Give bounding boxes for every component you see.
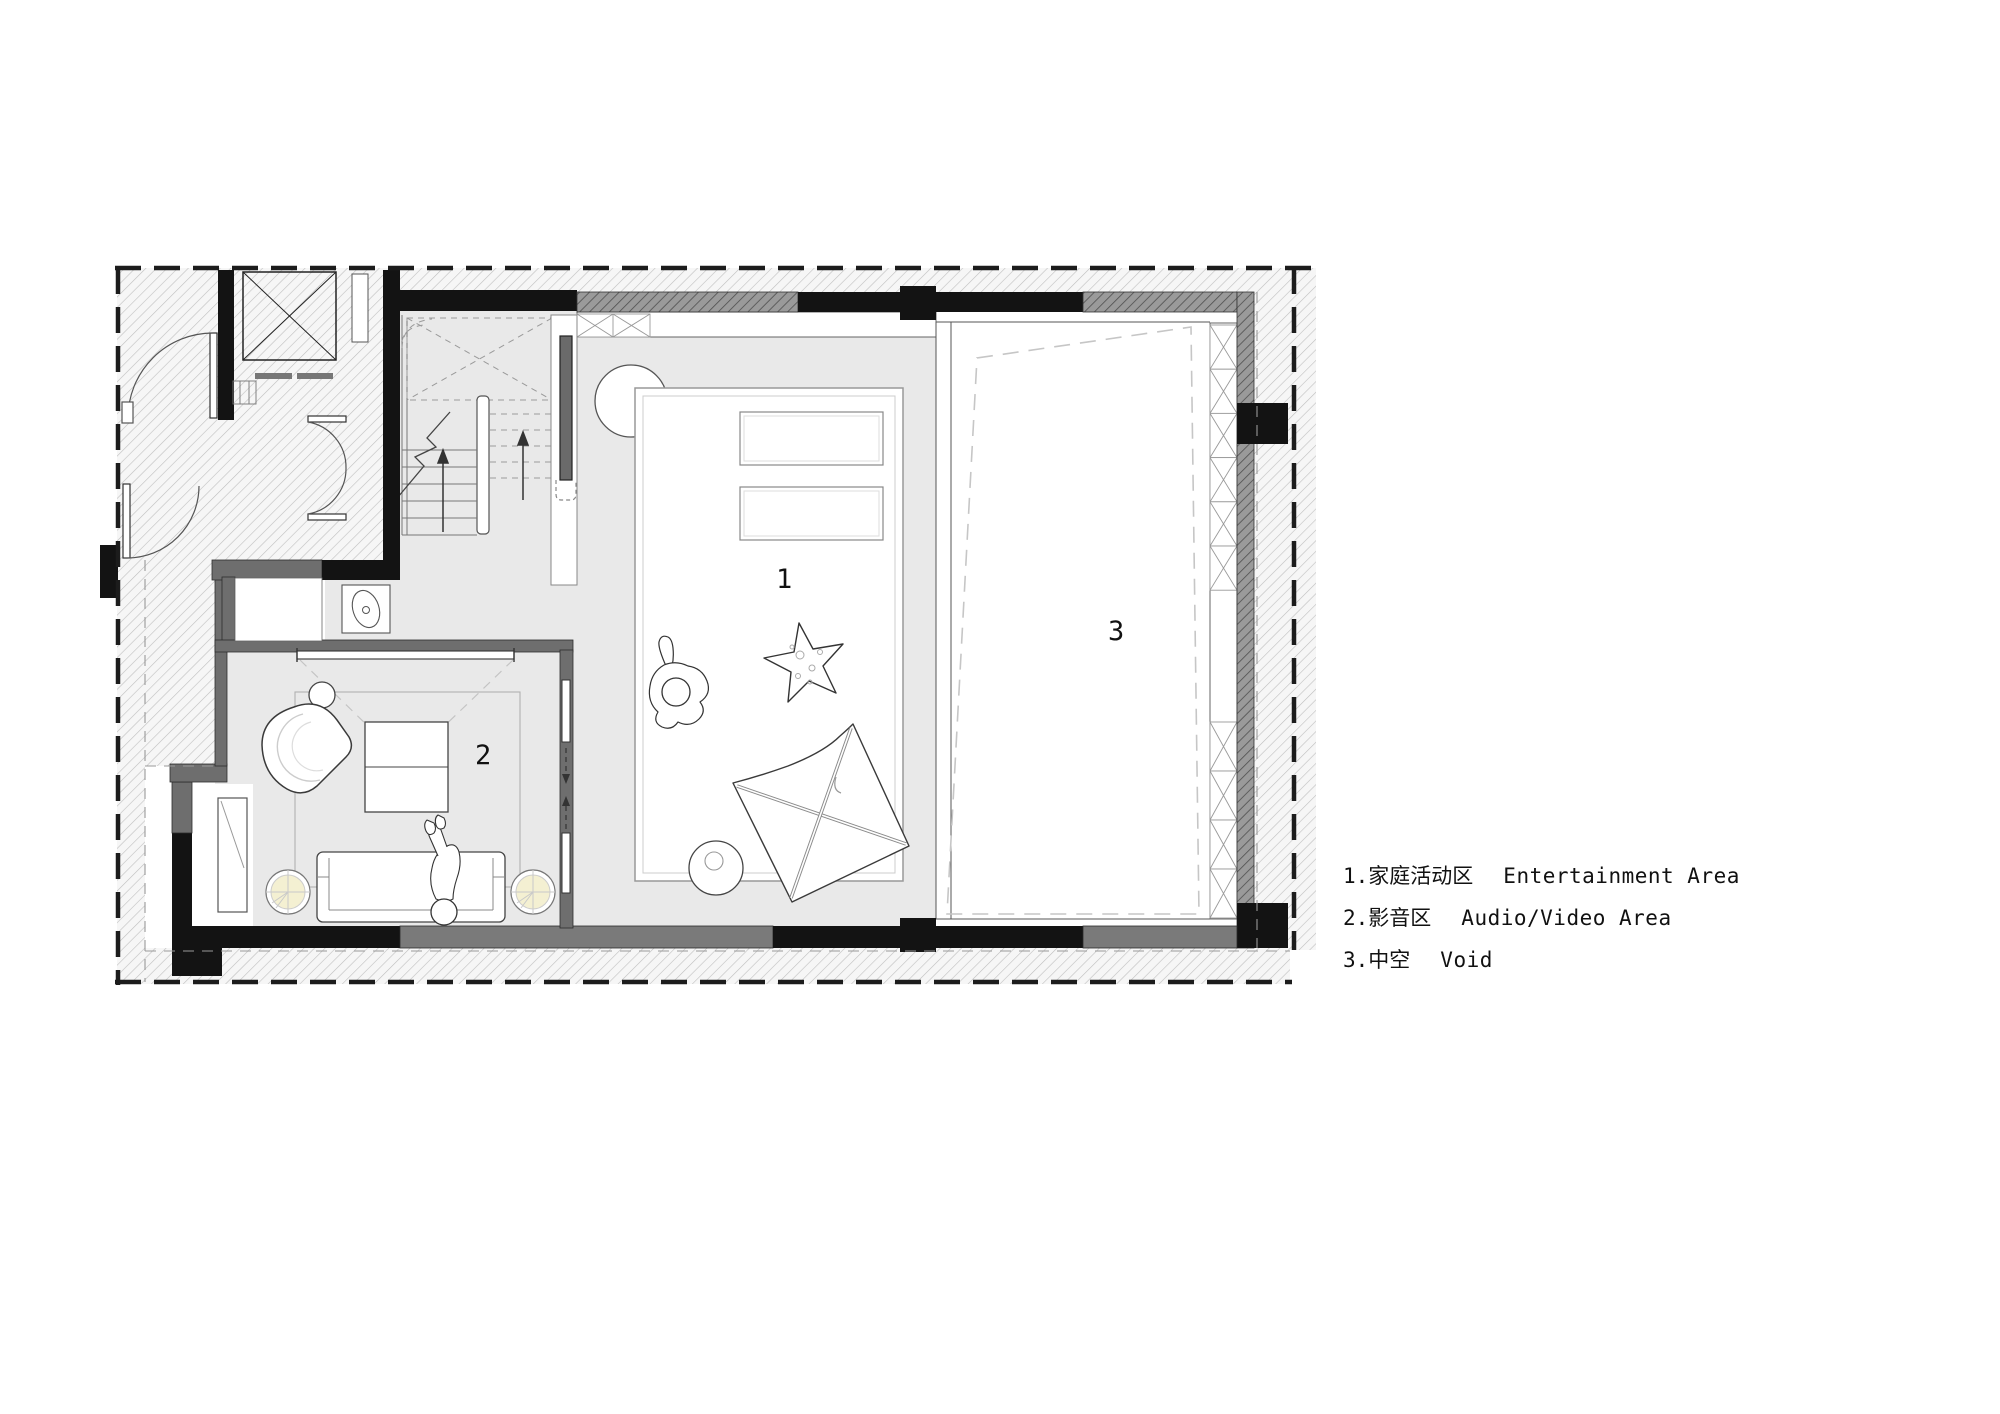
right-hatch-band	[1253, 268, 1316, 950]
room-3-label: 3	[1108, 616, 1124, 647]
toilet-fixture	[342, 585, 390, 633]
floor-plan-page: 2	[0, 0, 2000, 1414]
legend: 1.家庭活动区 Entertainment Area 2.影音区 Audio/V…	[1343, 855, 1740, 981]
legend-item-audio-video-area: 2.影音区 Audio/Video Area	[1343, 897, 1740, 939]
lobby-right-wall	[383, 270, 400, 572]
legend-label-en: Entertainment Area	[1503, 855, 1740, 897]
bottom-wall-gray-left	[400, 926, 773, 948]
leaning-mirror	[218, 798, 247, 912]
left-wall-jog	[170, 764, 227, 782]
bottom-hatch-band	[145, 948, 1290, 984]
top-wall-column	[900, 286, 936, 320]
top-hatch-band	[400, 268, 1253, 292]
kids-table-2	[740, 487, 883, 540]
lobby-bottom-wall-black	[322, 560, 400, 580]
top-wall-hatched-right	[1083, 292, 1237, 312]
floor-lamp-right	[511, 870, 555, 914]
closet-left-wall	[222, 577, 235, 643]
kids-table-1	[740, 412, 883, 465]
floor-plan-drawing: 2	[0, 0, 2000, 1414]
left-wall-gray-low	[172, 782, 192, 833]
room-2-top-wall	[215, 640, 573, 652]
window-mullions	[1210, 323, 1237, 919]
legend-label-zh: 2.影音区	[1343, 897, 1431, 939]
stair-stringer	[477, 396, 489, 534]
right-wall-column	[1237, 403, 1288, 444]
sill-cabinet	[577, 314, 650, 337]
elevator-left-wall	[218, 270, 234, 420]
elevator-door	[352, 274, 368, 342]
left-boundary-stub	[100, 545, 118, 598]
room-1-label: 1	[776, 564, 792, 595]
legend-label-en: Audio/Video Area	[1461, 897, 1671, 939]
coffee-table	[365, 722, 448, 812]
bottom-wall-gray-right	[1083, 926, 1237, 948]
room-2-label: 2	[475, 740, 491, 771]
legend-label-en: Void	[1440, 939, 1493, 981]
room-3-floor	[936, 322, 1210, 919]
room-1-pocket-door	[551, 315, 577, 585]
top-wall-black-right	[798, 292, 1083, 312]
door-stop	[122, 402, 133, 423]
sofa	[317, 852, 505, 922]
pocket-door-leaf	[560, 336, 572, 480]
room-3-void	[900, 322, 1237, 919]
mullion-x-top	[1210, 325, 1237, 590]
floor-lamp-left	[266, 870, 310, 914]
stool	[689, 841, 743, 895]
legend-item-void: 3.中空 Void	[1343, 939, 1740, 981]
top-wall-black-left	[400, 290, 577, 311]
bottom-right-corner-column	[1237, 903, 1288, 948]
legend-label-zh: 3.中空	[1343, 939, 1410, 981]
legend-item-entertainment-area: 1.家庭活动区 Entertainment Area	[1343, 855, 1740, 897]
left-wall-black	[172, 833, 192, 967]
top-wall-hatched-left	[577, 292, 798, 312]
legend-label-zh: 1.家庭活动区	[1343, 855, 1473, 897]
mullion-x-bottom	[1210, 722, 1237, 918]
bottom-wall-column	[900, 918, 936, 952]
closet	[235, 578, 322, 641]
room-1-furniture	[595, 365, 909, 902]
white-insets	[235, 578, 390, 641]
right-wall	[1237, 292, 1254, 948]
